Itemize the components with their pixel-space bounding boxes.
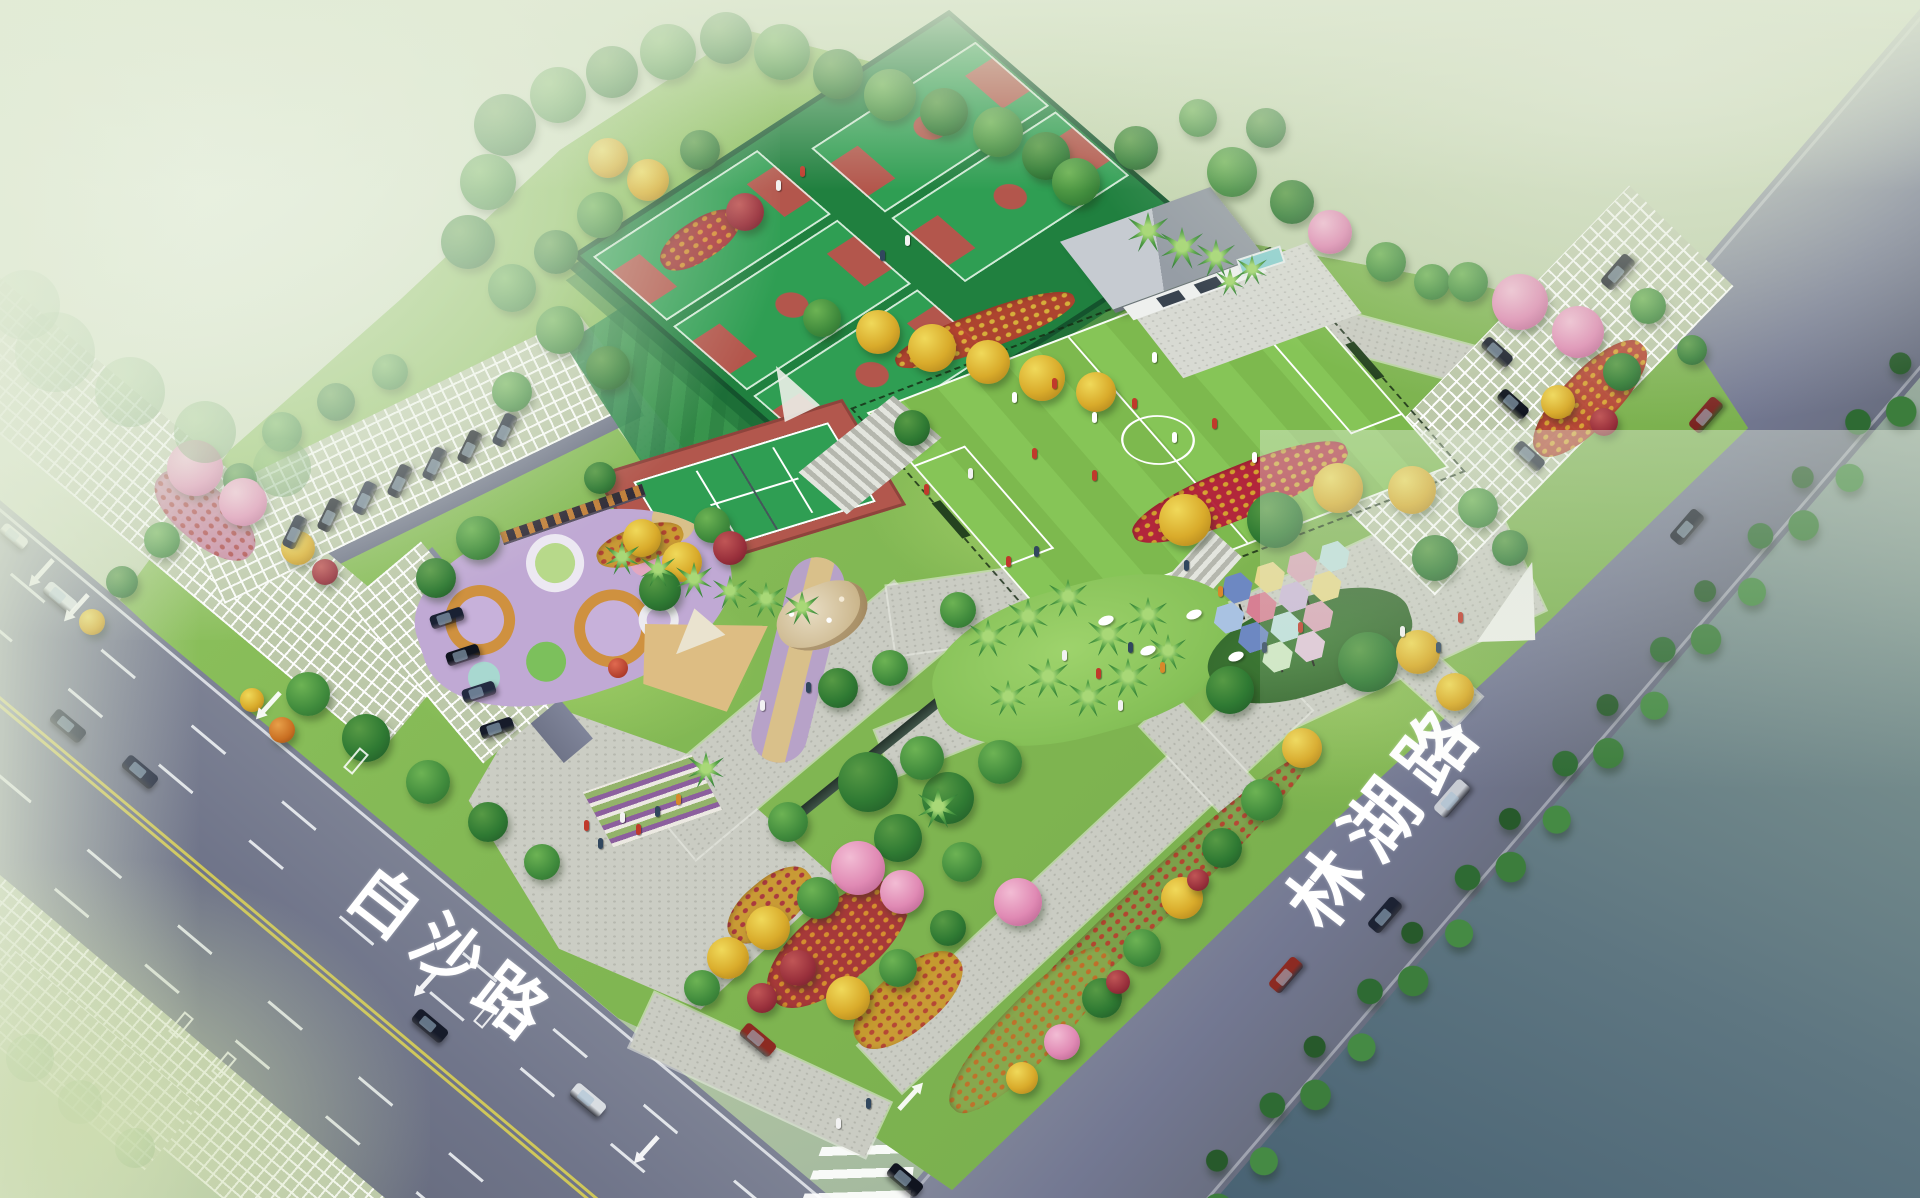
tree xyxy=(586,46,638,98)
tree xyxy=(813,49,863,99)
tree xyxy=(942,842,982,882)
tree xyxy=(1206,666,1254,714)
faded-tree xyxy=(58,1080,102,1124)
tree xyxy=(797,877,839,919)
tree xyxy=(1246,108,1286,148)
tree xyxy=(747,983,777,1013)
tree xyxy=(627,159,669,201)
person xyxy=(1436,642,1441,653)
tree xyxy=(1552,306,1604,358)
person xyxy=(1034,546,1039,557)
tree xyxy=(879,949,917,987)
tree xyxy=(713,531,747,565)
tree xyxy=(79,609,105,635)
person xyxy=(1212,418,1217,429)
tree xyxy=(768,802,808,842)
tree xyxy=(441,215,495,269)
faded-tree xyxy=(6,1034,54,1082)
tree xyxy=(900,736,944,780)
person xyxy=(776,180,781,191)
tree xyxy=(920,88,968,136)
person xyxy=(1252,452,1257,463)
person xyxy=(1012,392,1017,403)
tree xyxy=(1338,632,1398,692)
person xyxy=(866,1098,871,1109)
tree xyxy=(1179,99,1217,137)
tree xyxy=(838,752,898,812)
play-circle xyxy=(519,527,592,600)
person xyxy=(1062,650,1067,661)
tree xyxy=(144,522,180,558)
person xyxy=(1118,700,1123,711)
tree xyxy=(1458,488,1498,528)
faded-tree xyxy=(95,357,165,427)
tree xyxy=(1282,728,1322,768)
faded-tree xyxy=(253,439,311,497)
tree xyxy=(880,870,924,914)
person xyxy=(1458,612,1463,623)
tree xyxy=(488,264,536,312)
tree xyxy=(746,906,790,950)
person xyxy=(655,806,660,817)
tree xyxy=(826,976,870,1020)
person xyxy=(1298,622,1303,633)
tree xyxy=(1677,335,1707,365)
tree xyxy=(966,340,1010,384)
tree xyxy=(908,324,956,372)
person xyxy=(1128,642,1133,653)
tree xyxy=(536,306,584,354)
tree xyxy=(930,910,966,946)
tree xyxy=(468,802,508,842)
tree xyxy=(831,841,885,895)
tree xyxy=(1247,492,1303,548)
tree xyxy=(1114,126,1158,170)
tree xyxy=(584,462,616,494)
tree xyxy=(680,130,720,170)
tree xyxy=(894,410,930,446)
tree xyxy=(1603,353,1641,391)
person xyxy=(880,250,885,261)
tree xyxy=(818,668,858,708)
tree xyxy=(1448,262,1488,302)
tree xyxy=(1044,1024,1080,1060)
tree xyxy=(1388,466,1436,514)
tree xyxy=(416,558,456,598)
tree xyxy=(240,688,264,712)
person xyxy=(1092,470,1097,481)
tree xyxy=(1076,372,1116,412)
person xyxy=(1132,398,1137,409)
tree xyxy=(524,844,560,880)
tree xyxy=(726,193,764,231)
tree xyxy=(269,717,295,743)
tree xyxy=(406,760,450,804)
person xyxy=(836,1118,841,1129)
tree xyxy=(1202,828,1242,868)
person xyxy=(924,484,929,495)
person xyxy=(676,794,681,805)
person xyxy=(1152,352,1157,363)
tree xyxy=(530,67,586,123)
tree xyxy=(707,937,749,979)
tree xyxy=(1123,929,1161,967)
tree xyxy=(1366,242,1406,282)
tree xyxy=(1187,869,1209,891)
tree xyxy=(1106,970,1130,994)
tree xyxy=(106,566,138,598)
play-circle xyxy=(521,637,571,687)
tree xyxy=(1006,1062,1038,1094)
tree xyxy=(317,383,355,421)
person xyxy=(1262,642,1267,653)
person xyxy=(1006,556,1011,567)
person xyxy=(1160,662,1165,673)
tree xyxy=(577,192,623,238)
tree xyxy=(1590,408,1618,436)
person xyxy=(1052,378,1057,389)
tree xyxy=(780,950,816,986)
faded-tree xyxy=(115,1128,155,1168)
tree xyxy=(922,772,974,824)
tree xyxy=(534,230,578,274)
tree xyxy=(1492,530,1528,566)
person xyxy=(598,838,603,849)
dome-climber xyxy=(608,658,628,678)
tree xyxy=(286,672,330,716)
tree xyxy=(803,299,841,337)
person xyxy=(1092,412,1097,423)
person xyxy=(1184,560,1189,571)
park-aerial-rendering: 白沙路 林湖路 xyxy=(0,0,1920,1198)
tree xyxy=(1270,180,1314,224)
tree xyxy=(856,310,900,354)
tree xyxy=(872,650,908,686)
tree xyxy=(586,346,630,390)
tree xyxy=(312,559,338,585)
tree xyxy=(1052,158,1100,206)
person xyxy=(584,820,589,831)
person xyxy=(1096,668,1101,679)
person xyxy=(800,166,805,177)
tree xyxy=(1019,355,1065,401)
tree xyxy=(1492,274,1548,330)
tree xyxy=(684,970,720,1006)
tree xyxy=(1308,210,1352,254)
tree xyxy=(940,592,976,628)
tree xyxy=(640,24,696,80)
tree xyxy=(754,24,810,80)
tree xyxy=(1630,288,1666,324)
tree xyxy=(372,354,408,390)
faded-tree xyxy=(174,401,236,463)
tree xyxy=(456,516,500,560)
person xyxy=(636,824,641,835)
tree xyxy=(1241,779,1283,821)
tree xyxy=(1541,385,1575,419)
person xyxy=(905,235,910,246)
tree xyxy=(588,138,628,178)
tree xyxy=(978,740,1022,784)
person xyxy=(1172,432,1177,443)
tree xyxy=(1414,264,1450,300)
tree xyxy=(492,372,532,412)
tree xyxy=(994,878,1042,926)
person xyxy=(620,812,625,823)
tree xyxy=(474,94,536,156)
tree xyxy=(973,107,1023,157)
person xyxy=(760,700,765,711)
person xyxy=(1400,626,1405,637)
tree xyxy=(460,154,516,210)
tree xyxy=(864,69,916,121)
tree xyxy=(1412,535,1458,581)
tree xyxy=(1159,494,1211,546)
tree xyxy=(1313,463,1363,513)
tree xyxy=(1207,147,1257,197)
tree xyxy=(700,12,752,64)
person xyxy=(806,682,811,693)
person xyxy=(1032,448,1037,459)
person xyxy=(968,468,973,479)
person xyxy=(1218,586,1223,597)
center-circle xyxy=(1107,406,1208,474)
